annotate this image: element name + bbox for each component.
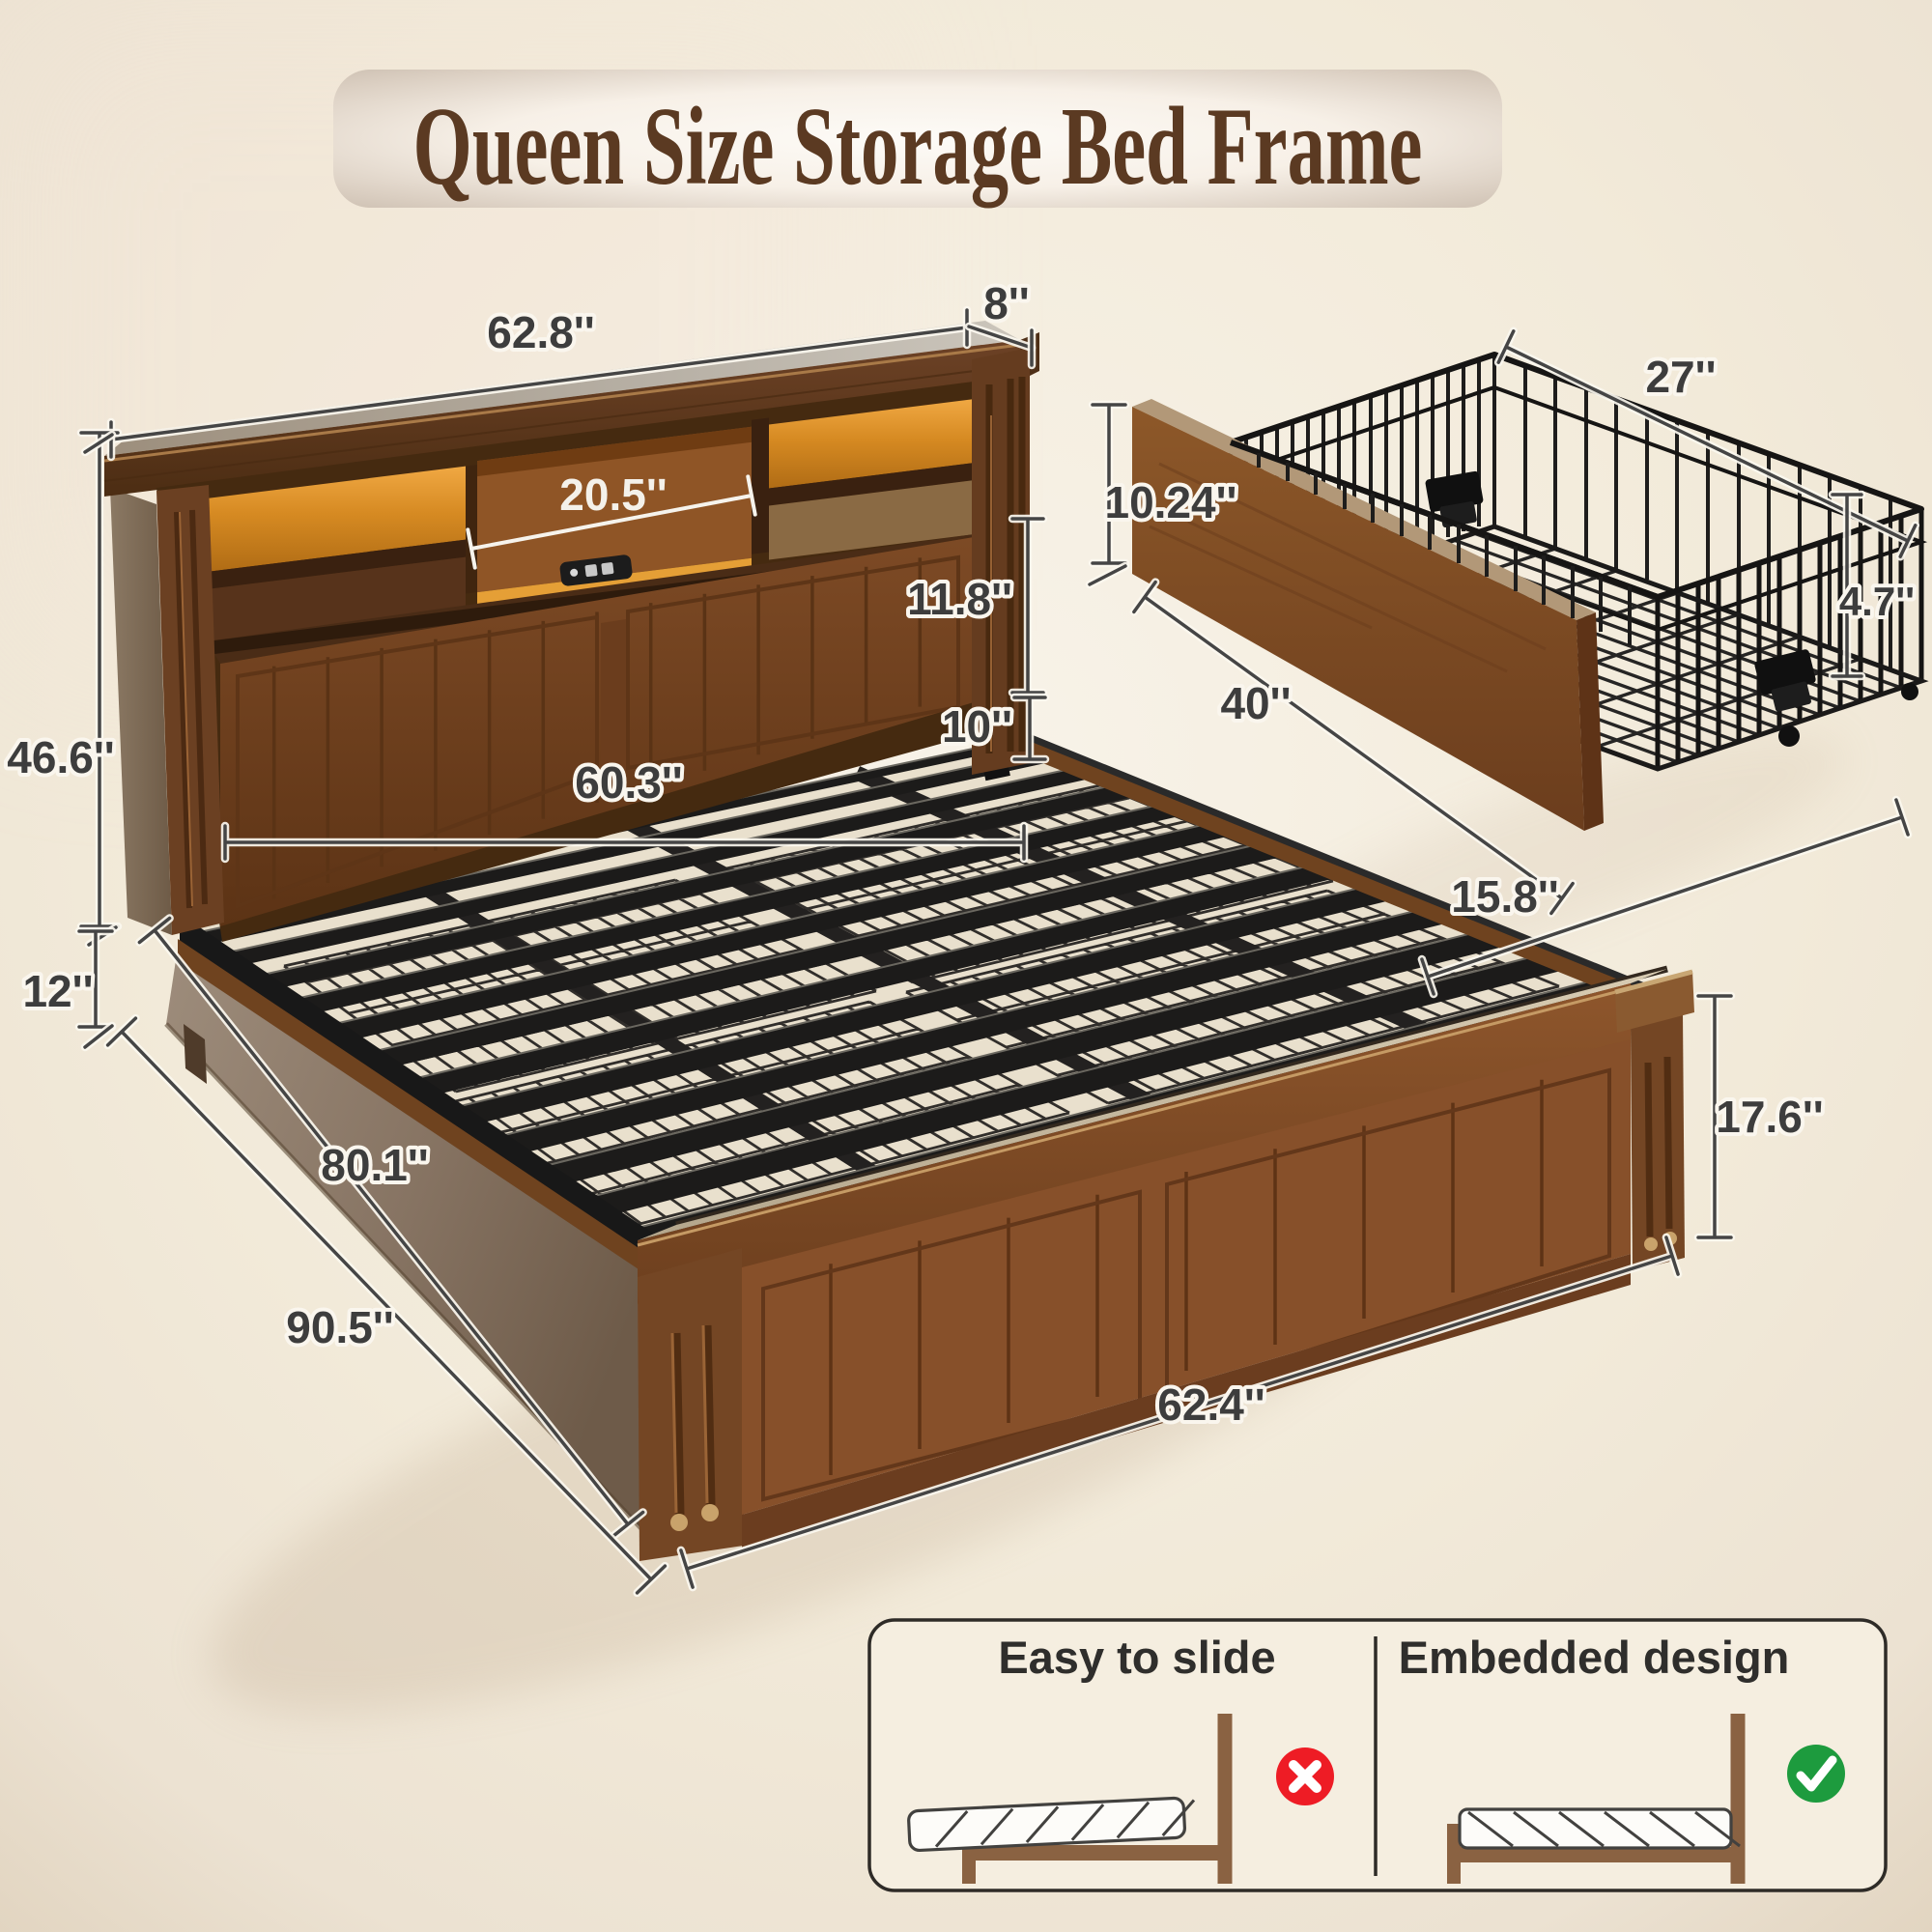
svg-text:60.3'': 60.3'' bbox=[575, 757, 682, 808]
svg-text:Easy to slide: Easy to slide bbox=[998, 1632, 1275, 1683]
svg-text:17.6'': 17.6'' bbox=[1716, 1092, 1823, 1142]
svg-text:40'': 40'' bbox=[1220, 678, 1291, 728]
svg-text:90.5'': 90.5'' bbox=[286, 1302, 393, 1352]
svg-text:Queen Size Storage Bed Frame: Queen Size Storage Bed Frame bbox=[413, 85, 1423, 209]
svg-text:10'': 10'' bbox=[942, 701, 1012, 752]
svg-text:62.4'': 62.4'' bbox=[1157, 1379, 1264, 1430]
svg-text:27'': 27'' bbox=[1645, 352, 1716, 402]
svg-text:15.8'': 15.8'' bbox=[1451, 871, 1558, 922]
svg-text:46.6'': 46.6'' bbox=[7, 732, 114, 782]
svg-text:80.1'': 80.1'' bbox=[321, 1140, 428, 1190]
svg-text:10.24'': 10.24'' bbox=[1105, 477, 1237, 527]
svg-text:62.8'': 62.8'' bbox=[487, 307, 594, 357]
svg-text:12'': 12'' bbox=[22, 966, 93, 1016]
svg-text:8'': 8'' bbox=[983, 278, 1029, 328]
svg-text:20.5'': 20.5'' bbox=[559, 469, 667, 520]
svg-text:Embedded design: Embedded design bbox=[1399, 1632, 1790, 1683]
svg-text:11.8'': 11.8'' bbox=[907, 574, 1012, 624]
svg-text:4.7'': 4.7'' bbox=[1839, 579, 1915, 624]
